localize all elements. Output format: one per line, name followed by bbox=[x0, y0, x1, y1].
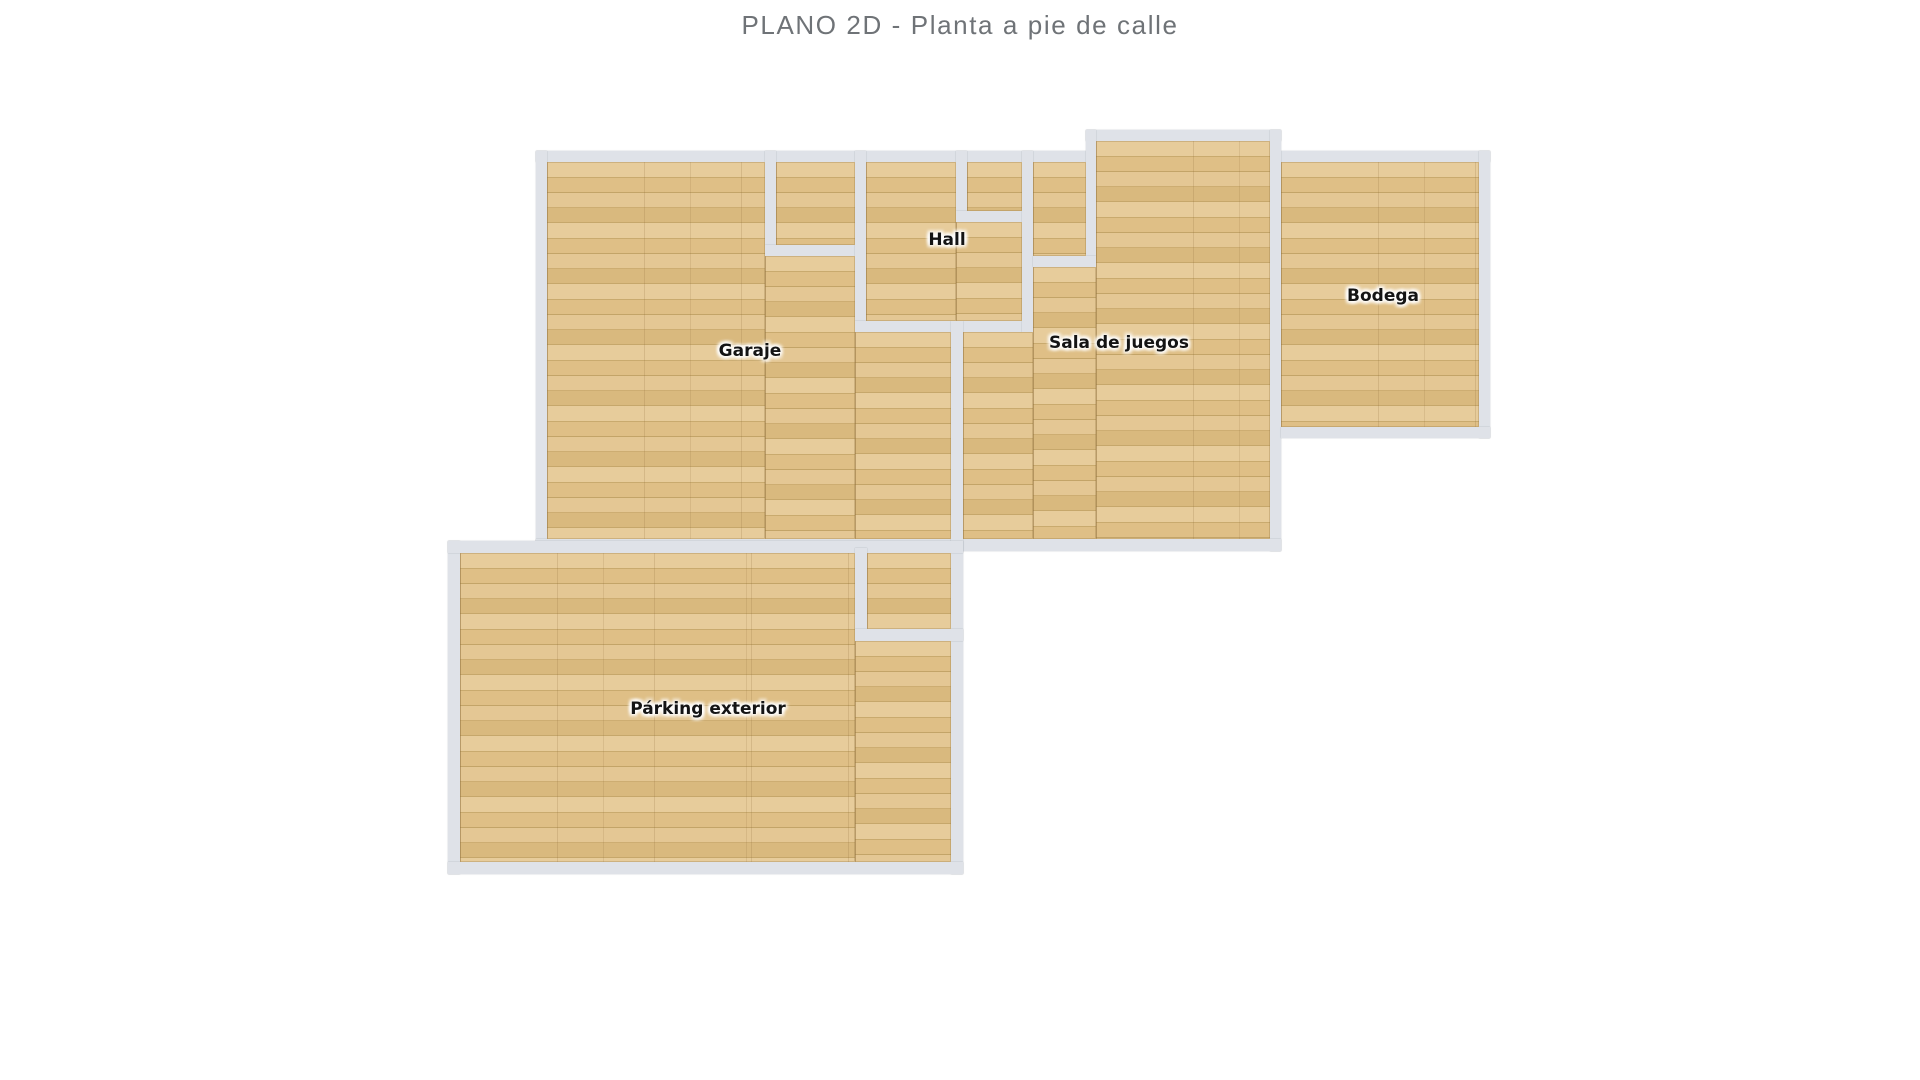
hall-floor bbox=[956, 222, 1022, 321]
bodega-bottom-wall bbox=[1281, 427, 1490, 438]
strip-bottom-wall bbox=[1033, 256, 1096, 267]
parking-floor bbox=[855, 641, 951, 862]
room-label-garaje: Garaje bbox=[719, 341, 782, 361]
sala-floor bbox=[963, 332, 1033, 539]
parking-left-wall bbox=[448, 541, 460, 874]
top-wall-main bbox=[536, 151, 1086, 162]
garaje-floor bbox=[855, 332, 951, 539]
floor-plan: GarajeHallSala de juegosBodegaPárking ex… bbox=[0, 0, 1920, 1080]
room-label-hall: Hall bbox=[928, 230, 965, 250]
garaje-alcove-floor bbox=[776, 162, 855, 245]
room-label-bodega: Bodega bbox=[1347, 286, 1419, 306]
alcove-left-wall bbox=[765, 151, 776, 256]
room-label-parking: Párking exterior bbox=[630, 699, 786, 719]
parking-nook-floor bbox=[867, 553, 951, 629]
sala-strip-floor bbox=[1033, 162, 1086, 256]
hall-right-wall bbox=[1022, 151, 1033, 332]
parking-nook-bottom-wall bbox=[855, 629, 963, 641]
sala-floor bbox=[1033, 267, 1096, 539]
parking-top-wall bbox=[448, 541, 963, 553]
room-label-sala: Sala de juegos bbox=[1049, 333, 1189, 353]
parking-nook-left-wall bbox=[855, 548, 867, 641]
garaje-sala-divider-wall bbox=[951, 321, 963, 874]
hall-left-wall bbox=[855, 151, 866, 332]
parking-bottom-wall bbox=[448, 862, 963, 874]
sala-right-wall bbox=[1270, 130, 1281, 551]
hall-nook-left-wall bbox=[956, 151, 967, 212]
garaje-floor bbox=[765, 256, 855, 539]
hall-nook-floor bbox=[967, 162, 1022, 211]
hall-bottom-wall bbox=[855, 321, 1033, 332]
top-wall-bodega bbox=[1281, 151, 1490, 162]
bodega-right-wall bbox=[1479, 151, 1490, 438]
alcove-bottom-wall bbox=[765, 245, 866, 256]
sala-bump-left-wall bbox=[1086, 130, 1096, 267]
sala-bump-top-wall bbox=[1086, 130, 1281, 141]
garaje-left-wall bbox=[536, 151, 547, 551]
